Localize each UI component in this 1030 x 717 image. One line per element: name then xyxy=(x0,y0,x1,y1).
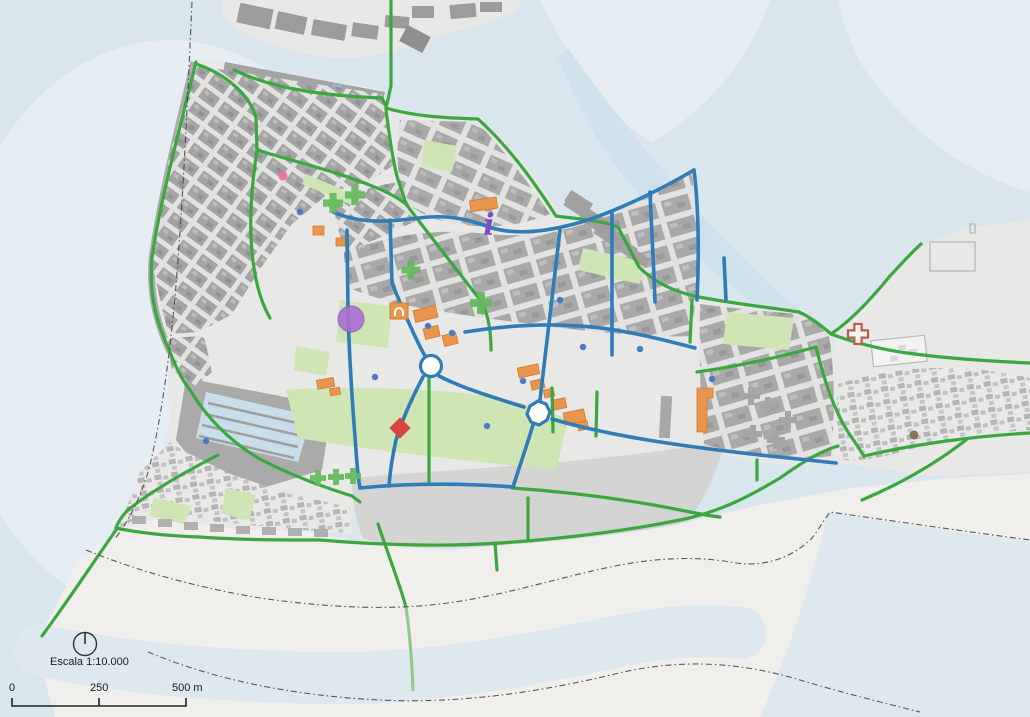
map-svg: i Escala 1:10.000 0 250 500 m xyxy=(0,0,1030,717)
marker-dot-icon xyxy=(425,323,431,329)
scale-tick-label-250: 250 xyxy=(90,682,108,694)
market-hall xyxy=(659,396,672,439)
park xyxy=(723,312,794,350)
marker-dot-icon xyxy=(520,378,526,384)
marker-dot-icon xyxy=(449,330,455,336)
marker-dot-icon xyxy=(279,172,288,181)
roundabout-west xyxy=(421,356,442,377)
marker-dot-icon xyxy=(910,431,919,440)
marker-dot-icon xyxy=(637,346,643,352)
info-point-icon: i xyxy=(483,208,494,243)
marker-dot-icon xyxy=(297,209,303,215)
monument-circle-icon xyxy=(338,306,364,332)
marker-dot-icon xyxy=(203,438,209,444)
map-canvas: i Escala 1:10.000 0 250 500 m xyxy=(0,0,1030,717)
museum-building-icon xyxy=(390,303,408,319)
marker-dot-icon xyxy=(372,374,378,380)
scale-title: Escala 1:10.000 xyxy=(50,656,129,668)
marker-dot-icon xyxy=(484,423,490,429)
marker-dot-icon xyxy=(557,297,563,303)
scale-tick-label-0: 0 xyxy=(9,682,15,694)
marker-dot-icon xyxy=(580,344,586,350)
scale-tick-label-500: 500 m xyxy=(172,682,203,694)
roundabout-east xyxy=(527,401,550,425)
svg-text:i: i xyxy=(483,208,494,243)
marker-dot-icon xyxy=(709,376,715,382)
